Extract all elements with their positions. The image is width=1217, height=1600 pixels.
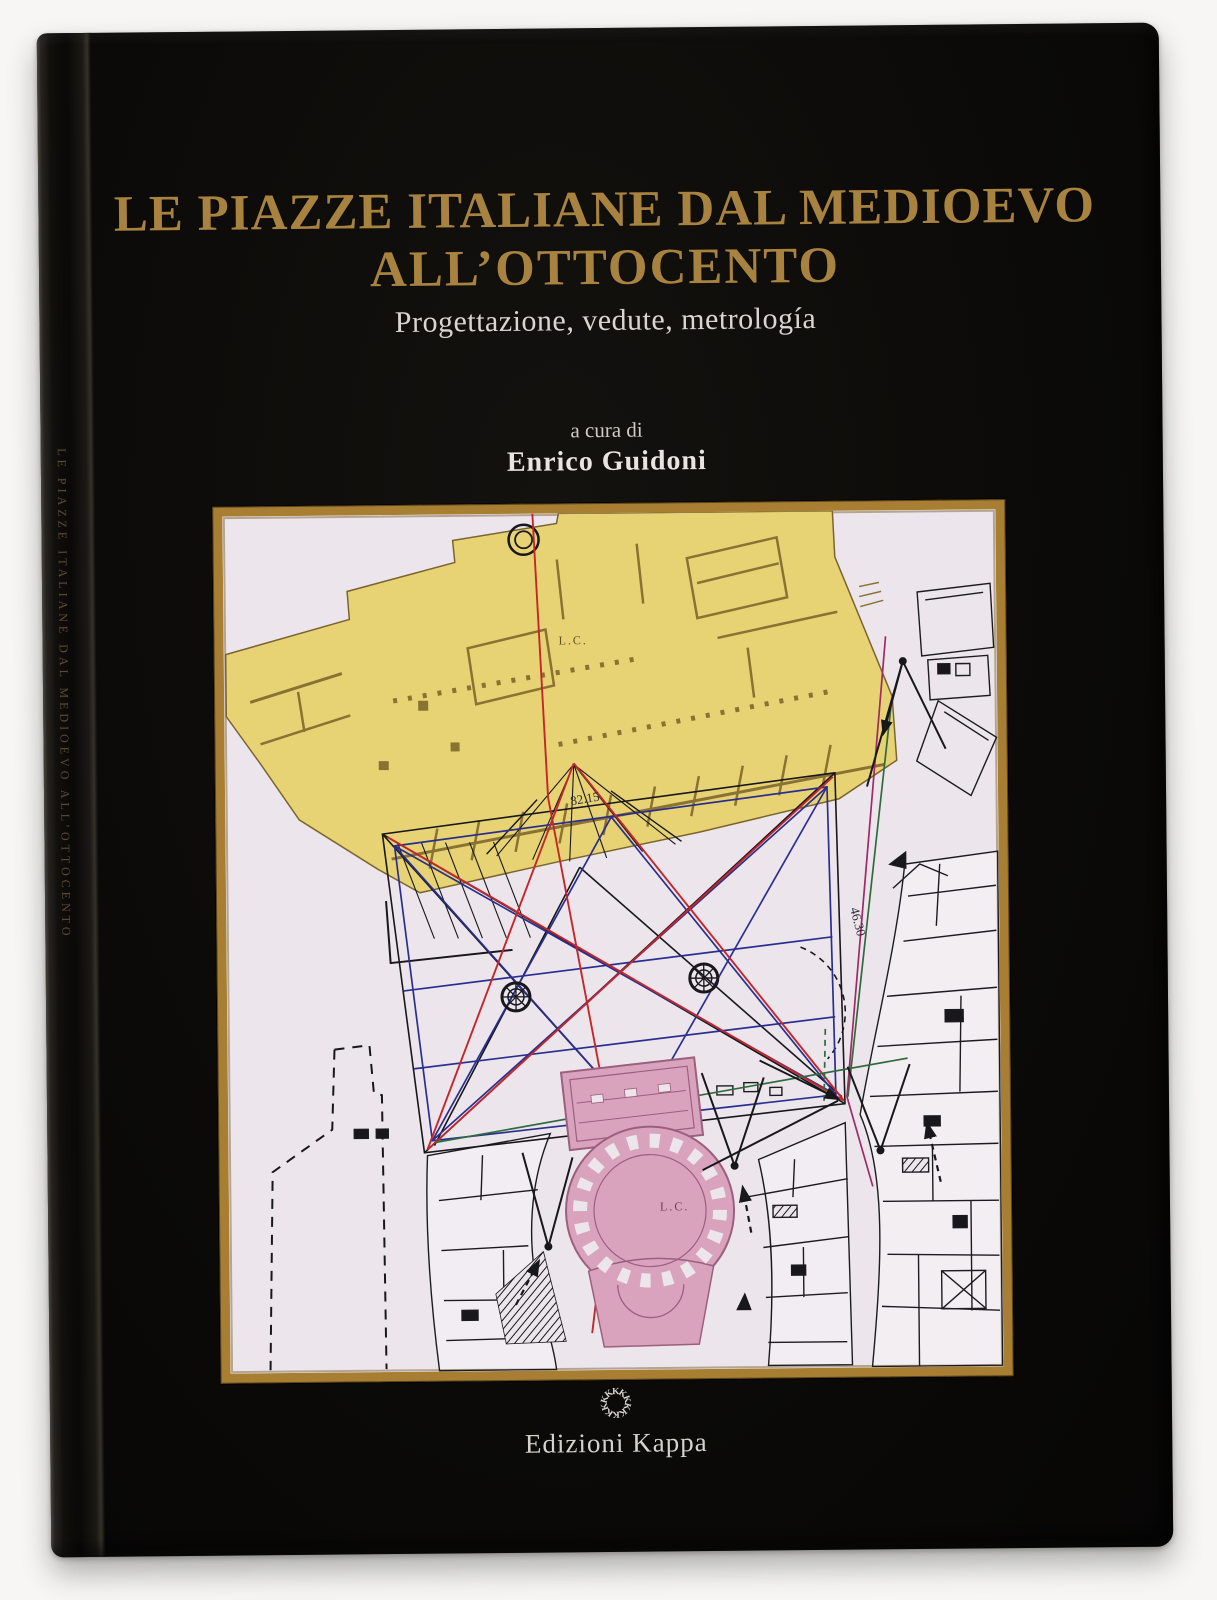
piazza-plan-illustration: L.C. — [222, 509, 1003, 1373]
cover-artwork-frame: L.C. — [212, 499, 1013, 1384]
fountain-wheel-west — [502, 983, 530, 1011]
fountain-wheel-east — [690, 964, 718, 992]
rotunda-label: L.C. — [660, 1199, 689, 1213]
book-title: LE PIAZZE ITALIANE DAL MEDIOEVO ALL’OTTO… — [92, 177, 1117, 302]
publisher-block: KKKKKKKKKK Edizioni Kappa — [104, 1375, 1129, 1464]
spine-title: LE PIAZZE ITALIANE DAL MEDIOEVO ALL’OTTO… — [54, 448, 74, 939]
publisher-name: Edizioni Kappa — [104, 1423, 1128, 1464]
book-cover: LE PIAZZE ITALIANE DAL MEDIOEVO ALL’OTTO… — [37, 23, 1174, 1558]
editor-name: Enrico Guidoni — [95, 441, 1119, 483]
front-cover: LE PIAZZE ITALIANE DAL MEDIOEVO ALL’OTTO… — [91, 23, 1130, 1557]
palace-label: L.C. — [558, 633, 587, 647]
kappa-ring-logo: KKKKKKKKKK — [593, 1380, 639, 1426]
photo-background: LE PIAZZE ITALIANE DAL MEDIOEVO ALL’OTTO… — [0, 0, 1217, 1600]
book-subtitle: Progettazione, vedute, metrología — [93, 299, 1117, 343]
book-title-line1: LE PIAZZE ITALIANE DAL MEDIOEVO — [92, 177, 1117, 244]
book-title-line2: ALL’OTTOCENTO — [93, 235, 1118, 302]
